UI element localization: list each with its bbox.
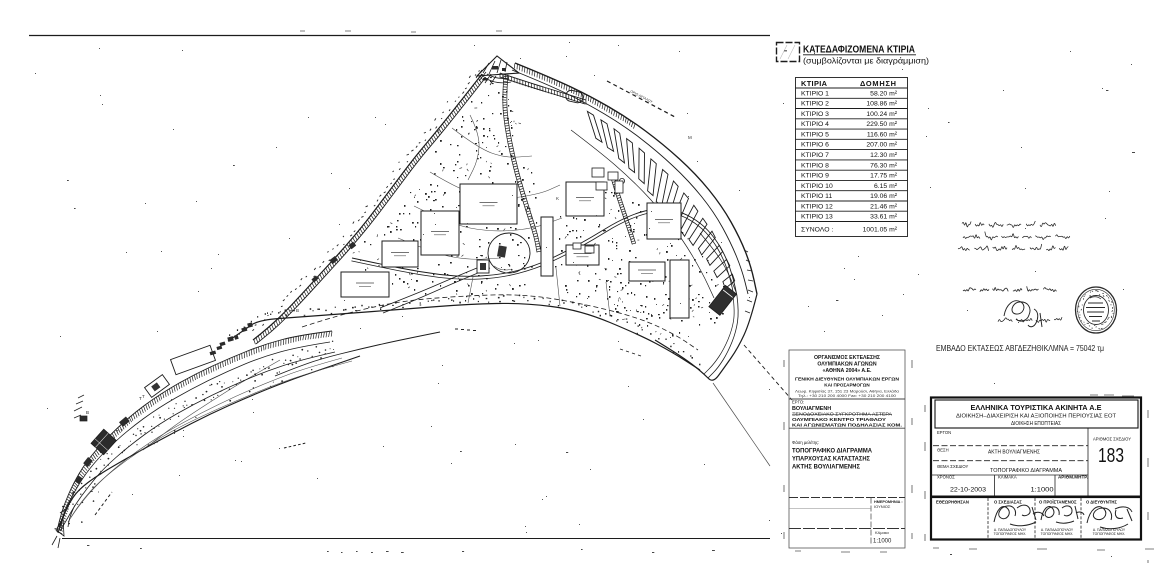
svg-text:58.20 m²: 58.20 m² (870, 90, 898, 97)
svg-text:ΚΤΙΡΙΑ: ΚΤΙΡΙΑ (801, 79, 828, 88)
svg-text:19.06 m²: 19.06 m² (870, 193, 898, 200)
svg-text:ΟΛΥΜΠΙΑΚΩΝ ΑΓΩΝΩΝ: ΟΛΥΜΠΙΑΚΩΝ ΑΓΩΝΩΝ (817, 362, 876, 368)
svg-text:21.46 m²: 21.46 m² (870, 203, 898, 210)
svg-text:ΒΟΥΛΙΑΓΜΕΝΗ: ΒΟΥΛΙΑΓΜΕΝΗ (792, 406, 831, 412)
svg-text:22-10-2003: 22-10-2003 (950, 487, 986, 494)
svg-text:ΚΤΙΡΙΟ 4: ΚΤΙΡΙΟ 4 (801, 121, 829, 128)
svg-text:76.30 m²: 76.30 m² (870, 162, 898, 169)
svg-text:ΚΤΙΡΙΟ 7: ΚΤΙΡΙΟ 7 (801, 152, 829, 159)
svg-text:Τηλ.: +30 210 200 4000 Fax: +: Τηλ.: +30 210 200 4000 Fax: +30 210 200 … (798, 394, 896, 398)
svg-text:ΑΚΤΗΣ ΒΟΥΛΙΑΓΜΕΝΗΣ: ΑΚΤΗΣ ΒΟΥΛΙΑΓΜΕΝΗΣ (792, 465, 860, 471)
svg-text:1:1000: 1:1000 (1031, 487, 1055, 494)
svg-text:ΕΡΓΟΝ: ΕΡΓΟΝ (937, 430, 951, 435)
svg-text:«ΑΘΗΝΑ 2004» Α.Ε.: «ΑΘΗΝΑ 2004» Α.Ε. (823, 368, 873, 374)
svg-text:207.00 m²: 207.00 m² (866, 142, 897, 149)
svg-text:ΚΤΙΡΙΟ 8: ΚΤΙΡΙΟ 8 (801, 162, 829, 169)
svg-text:ΚΤΙΡΙΟ 9: ΚΤΙΡΙΟ 9 (801, 173, 829, 180)
svg-text:ΞΕΝΟΔΟΧΕΙΑΚΟ ΣΥΓΚΡΟΤΗΜΑ ΑΣΤΕΡΑ: ΞΕΝΟΔΟΧΕΙΑΚΟ ΣΥΓΚΡΟΤΗΜΑ ΑΣΤΕΡΑ (792, 412, 893, 418)
svg-text:ΚΤΙΡΙΟ 10: ΚΤΙΡΙΟ 10 (801, 183, 833, 190)
svg-text:ΑΡΙΘΜΟΣ ΣΧΕΔΙΟΥ: ΑΡΙΘΜΟΣ ΣΧΕΔΙΟΥ (1093, 437, 1131, 442)
svg-text:1001.05 m²: 1001.05 m² (863, 227, 898, 234)
svg-text:ΔΙΟΙΚΗΣΗ ΕΠΟΠΤΕΙΑΣ: ΔΙΟΙΚΗΣΗ ΕΠΟΠΤΕΙΑΣ (1011, 421, 1061, 427)
svg-text:ΕΘΕΩΡΗΘΗΣΑΝ: ΕΘΕΩΡΗΘΗΣΑΝ (936, 500, 969, 505)
svg-text:ΤΟΠΟΓΡΑΦΙΚΟ ΔΙΑΓΡΑΜΜΑ: ΤΟΠΟΓΡΑΦΙΚΟ ΔΙΑΓΡΑΜΜΑ (990, 468, 1062, 474)
svg-text:ΑΚΤΗ ΒΟΥΛΙΑΓΜΕΝΗΣ: ΑΚΤΗ ΒΟΥΛΙΑΓΜΕΝΗΣ (988, 450, 1040, 456)
svg-text:ΤΟΠΟΓΡΑΦΟΣ ΜΗΧ.: ΤΟΠΟΓΡΑΦΟΣ ΜΗΧ. (1041, 532, 1074, 536)
svg-text:12.30 m²: 12.30 m² (870, 152, 898, 159)
svg-text:ΥΠΑΡΧΟΥΣΑΣ ΚΑΤΑΣΤΑΣΗΣ: ΥΠΑΡΧΟΥΣΑΣ ΚΑΤΑΣΤΑΣΗΣ (792, 457, 870, 463)
svg-text:108.86 m²: 108.86 m² (866, 101, 897, 108)
svg-text:ΣΥΝΟΛΟ :: ΣΥΝΟΛΟ : (801, 227, 833, 234)
svg-text:ΟΛΥΜΠΙΑΚΟ ΚΕΝΤΡΟ ΤΡΙΑΘΛΟΥ: ΟΛΥΜΠΙΑΚΟ ΚΕΝΤΡΟ ΤΡΙΑΘΛΟΥ (792, 417, 887, 423)
svg-text:ΚΤΙΡΙΟ 3: ΚΤΙΡΙΟ 3 (801, 111, 829, 118)
svg-text:ΚΤΙΡΙΟ 6: ΚΤΙΡΙΟ 6 (801, 142, 829, 149)
svg-text:ΚΤΙΡΙΟ 12: ΚΤΙΡΙΟ 12 (801, 203, 833, 210)
svg-text:Φάση μελέτης:: Φάση μελέτης: (792, 440, 819, 445)
svg-text:6.15 m²: 6.15 m² (874, 183, 898, 190)
svg-text:ΕΡΓΟ:: ΕΡΓΟ: (792, 400, 804, 405)
svg-text:B: B (296, 308, 299, 313)
svg-text:ΚΤΙΡΙΟ 13: ΚΤΙΡΙΟ 13 (801, 214, 833, 221)
svg-text:ΚΑΙ ΑΓΩΝΙΣΜΑΤΩΝ ΠΟΔΗΛΑΣΙΑΣ ΚΟΜ: ΚΑΙ ΑΓΩΝΙΣΜΑΤΩΝ ΠΟΔΗΛΑΣΙΑΣ ΚΟΜ. (792, 423, 902, 429)
svg-text:229.50 m²: 229.50 m² (866, 121, 897, 128)
svg-text:ΘΕΜΑ ΣΧΕΔΙΟΥ: ΘΕΜΑ ΣΧΕΔΙΟΥ (937, 464, 969, 469)
svg-text:Ο ΔΙΕΥΘΥΝΤΗΣ: Ο ΔΙΕΥΘΥΝΤΗΣ (1086, 500, 1117, 505)
svg-text:17.75 m²: 17.75 m² (870, 173, 898, 180)
svg-text:Ο ΠΡΟΪΣΤΑΜΕΝΟΣ: Ο ΠΡΟΪΣΤΑΜΕΝΟΣ (1039, 500, 1077, 505)
svg-text:(συμβολίζονται με διαγράμμιση): (συμβολίζονται με διαγράμμιση) (803, 56, 929, 66)
svg-text:ΘΕΣΗ: ΘΕΣΗ (937, 448, 949, 453)
svg-text:ΤΟΠΟΓΡΑΦΟΣ ΜΗΧ.: ΤΟΠΟΓΡΑΦΟΣ ΜΗΧ. (1093, 532, 1126, 536)
svg-text:ΚΤΙΡΙΟ 1: ΚΤΙΡΙΟ 1 (801, 90, 829, 97)
svg-text:ΚΑΙ ΠΡΟΣΑΡΜΟΓΩΝ: ΚΑΙ ΠΡΟΣΑΡΜΟΓΩΝ (824, 383, 870, 388)
svg-text:T: T (142, 394, 145, 399)
svg-text:ΓΕΝΙΚΗ ΔΙΕΥΘΥΝΣΗ ΟΛΥΜΠΙΑΚΩΝ ΕΡ: ΓΕΝΙΚΗ ΔΙΕΥΘΥΝΣΗ ΟΛΥΜΠΙΑΚΩΝ ΕΡΓΩΝ (795, 377, 900, 382)
svg-text:100.24 m²: 100.24 m² (866, 111, 897, 118)
svg-text:Ο ΣΧΕΔΙΑΣΑΣ: Ο ΣΧΕΔΙΑΣΑΣ (994, 500, 1022, 505)
svg-text:1:1000: 1:1000 (873, 539, 892, 545)
svg-text:T: T (120, 428, 123, 433)
svg-text:B: B (86, 410, 89, 415)
svg-text:ΔΟΜΗΣΗ: ΔΟΜΗΣΗ (860, 79, 896, 88)
svg-text:ΚΑΤΕΔΑΦΙΖΟΜΕΝΑ ΚΤΙΡΙΑ: ΚΑΤΕΔΑΦΙΖΟΜΕΝΑ ΚΤΙΡΙΑ (803, 45, 915, 56)
svg-text:33.61 m²: 33.61 m² (870, 214, 898, 221)
svg-text:ΟΡΓΑΝΙΣΜΟΣ ΕΚΤΕΛΕΣΗΣ: ΟΡΓΑΝΙΣΜΟΣ ΕΚΤΕΛΕΣΗΣ (814, 355, 880, 361)
svg-text:116.60 m²: 116.60 m² (867, 131, 898, 138)
svg-text:ΕΛΛΗΝΙΚΑ ΤΟΥΡΙΣΤΙΚΑ ΑΚΙΝΗΤΑ Α.: ΕΛΛΗΝΙΚΑ ΤΟΥΡΙΣΤΙΚΑ ΑΚΙΝΗΤΑ Α.Ε (971, 403, 1102, 412)
svg-text:ΤΟΠΟΓΡΑΦΙΚΟ ΔΙΑΓΡΑΜΜΑ: ΤΟΠΟΓΡΑΦΙΚΟ ΔΙΑΓΡΑΜΜΑ (792, 449, 873, 455)
svg-text:Φ: Φ (437, 129, 441, 134)
svg-text:K: K (556, 196, 559, 201)
svg-text:183: 183 (1098, 445, 1124, 467)
svg-text:Κλίμακα: Κλίμακα (875, 531, 890, 535)
svg-text:ΙΟΥΝΙΟΣ: ΙΟΥΝΙΟΣ (874, 504, 891, 509)
svg-text:T: T (116, 429, 119, 434)
svg-text:ΚΤΙΡΙΟ 11: ΚΤΙΡΙΟ 11 (801, 193, 832, 200)
svg-text:ΔΙΟΙΚΗΣΗ–ΔΙΑΧΕΙΡΙΣΗ ΚΑΙ ΑΞΙΟΠΟ: ΔΙΟΙΚΗΣΗ–ΔΙΑΧΕΙΡΙΣΗ ΚΑΙ ΑΞΙΟΠΟΙΗΣΗ ΠΕΡΙΟ… (956, 414, 1117, 420)
svg-text:A: A (618, 296, 621, 301)
svg-text:ΤΟΠΟΓΡΑΦΟΣ ΜΗΧ.: ΤΟΠΟΓΡΑΦΟΣ ΜΗΧ. (994, 532, 1027, 536)
svg-text:ΚΤΙΡΙΟ 5: ΚΤΙΡΙΟ 5 (801, 131, 829, 138)
svg-text:M: M (688, 135, 692, 140)
svg-text:ΕΜΒΑΔΟ ΕΚΤΑΣΕΩΣ ΑΒΓΔΕΖΗΘΙΚΛΜΝΑ: ΕΜΒΑΔΟ ΕΚΤΑΣΕΩΣ ΑΒΓΔΕΖΗΘΙΚΛΜΝΑ = 75042 τ… (936, 344, 1104, 353)
svg-text:ΚΤΙΡΙΟ 2: ΚΤΙΡΙΟ 2 (801, 101, 829, 108)
